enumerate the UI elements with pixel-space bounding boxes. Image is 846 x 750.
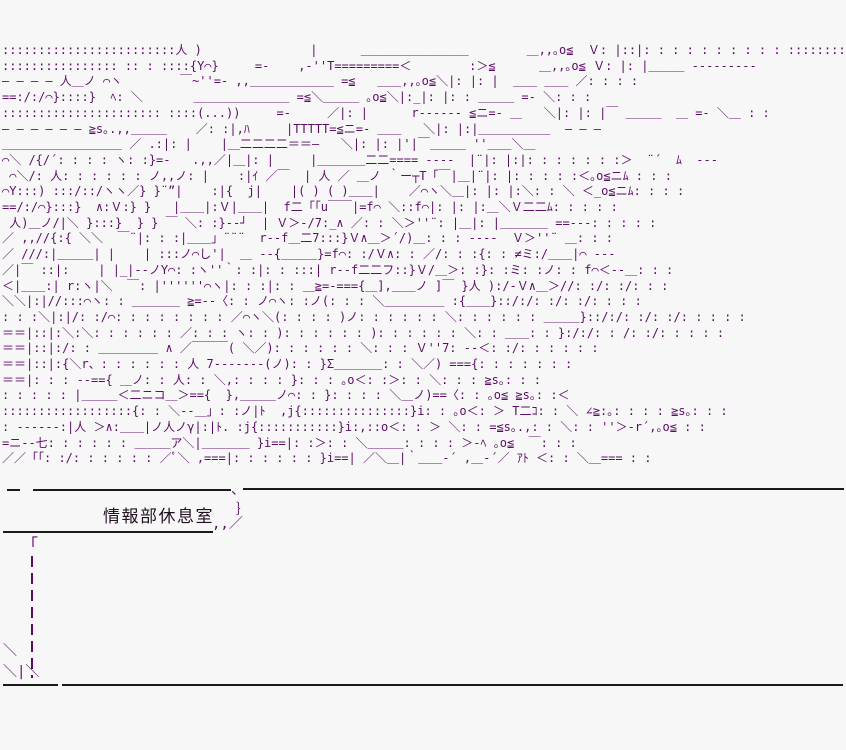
bubble-top-rule-left bbox=[7, 489, 20, 491]
scene-location-label: 情報部休息室 bbox=[103, 502, 214, 527]
ascii-art: ::::::::::::::::::::::::人 ) | ＿＿＿＿＿＿＿＿＿ … bbox=[2, 43, 846, 467]
bubble-tail-top-glyph: 、 bbox=[231, 483, 245, 497]
floor-rule-right bbox=[62, 684, 843, 686]
aa-scene-frame: ::::::::::::::::::::::::人 ) | ＿＿＿＿＿＿＿＿＿ … bbox=[0, 0, 846, 750]
bubble-tail-mid-glyph: ｝ bbox=[236, 503, 250, 517]
ceiling-rule-right bbox=[243, 488, 844, 490]
bubble-tail-bottom-glyph: ,,／ bbox=[212, 517, 243, 531]
bottom-left-marks: ＼ ＼|＼ bbox=[3, 641, 39, 683]
corner-bracket-glyph: 「 bbox=[22, 538, 38, 552]
floor-rule-left bbox=[3, 684, 58, 686]
bubble-bottom-rule bbox=[3, 531, 213, 533]
bubble-top-rule bbox=[33, 489, 231, 491]
